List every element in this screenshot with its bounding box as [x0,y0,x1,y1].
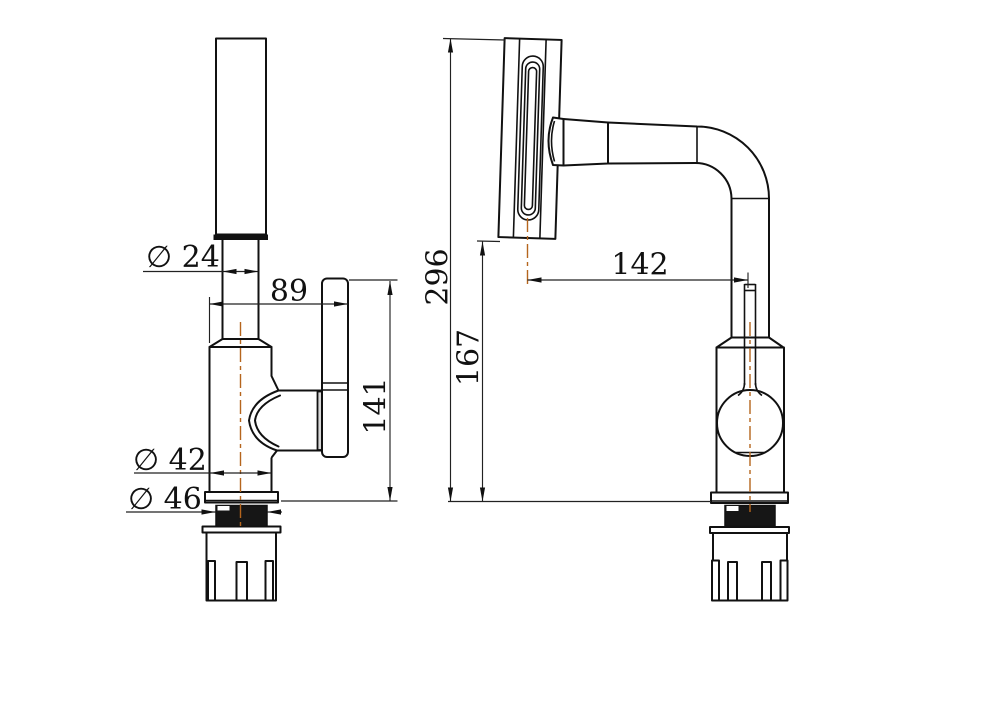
dim-label: 296 [421,248,456,305]
mounting-nut-side [712,533,788,601]
nut-slot [266,561,274,601]
dim-overall-height: 296 [421,39,506,502]
body-shoulder-right [259,339,272,347]
dim-label: 89 [270,274,308,309]
drawing-sheet: ∅ 24 89 141 ∅ 42 [0,0,1000,707]
dim-label: ∅ 24 [146,240,220,275]
nut-slot [781,561,788,601]
nut-slot [762,562,771,601]
arrowhead-icon [245,269,259,274]
arrowhead-icon [387,281,392,295]
arrowhead-icon [202,509,216,514]
spout-tube-cap [214,235,269,241]
arrowhead-icon [210,301,224,306]
arrowhead-icon [480,488,485,502]
side-view: 296 167 142 [421,38,790,600]
mounting-nut [207,533,277,601]
technical-drawing: ∅ 24 89 141 ∅ 42 [0,0,1000,707]
dim-label: 142 [611,248,668,283]
arrowhead-icon [448,39,453,53]
arrowhead-icon [528,277,542,282]
dim-label: ∅ 42 [133,443,207,478]
dim-spout-reach: 142 [528,248,749,289]
dim-label: 141 [359,377,394,434]
front-view: ∅ 24 89 141 ∅ 42 [126,39,398,601]
body-shoulder-left [210,339,223,347]
thread-highlight [218,506,230,511]
nut-slot [208,561,215,601]
base-flange [205,492,278,503]
arrowhead-icon [448,488,453,502]
nut-slot [728,562,737,601]
arrowhead-icon [267,509,281,514]
dim-label: 167 [452,329,487,386]
dim-label: ∅ 46 [128,482,202,517]
arrowhead-icon [223,269,237,274]
mounting-thread [216,506,267,527]
thread-highlight [727,506,739,511]
pivot-boss [549,118,564,166]
arrowhead-icon [480,242,485,256]
dim-spout-diameter: ∅ 24 [143,240,259,275]
nut-slot [712,561,719,601]
spout-tube [216,39,266,235]
arrowhead-icon [387,487,392,501]
nut-slot [237,562,248,601]
dim-outlet-height: 167 [452,241,501,502]
arm-connector [564,119,609,166]
